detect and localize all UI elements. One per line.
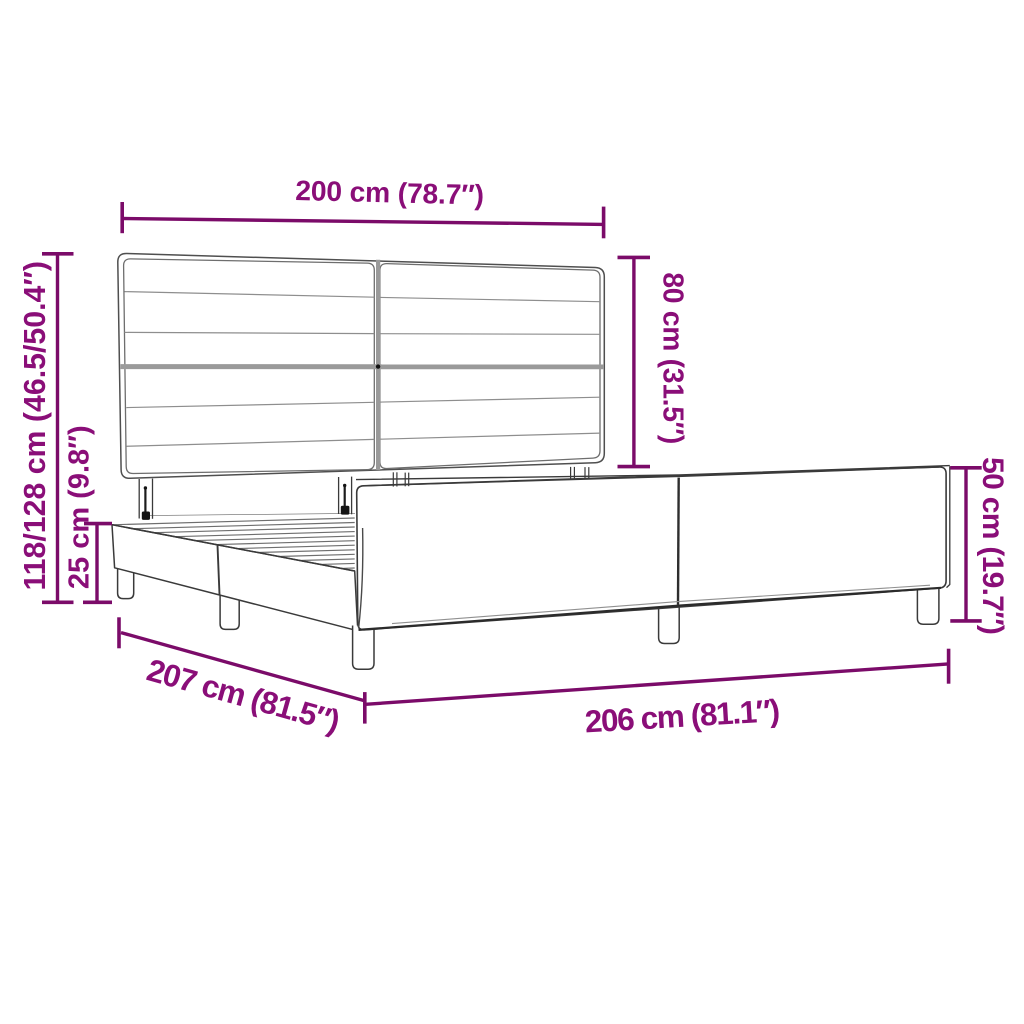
svg-text:80 cm (31.5″): 80 cm (31.5″) [658,272,690,444]
svg-text:207 cm (81.5″): 207 cm (81.5″) [143,651,343,739]
svg-text:200 cm (78.7″): 200 cm (78.7″) [295,174,484,211]
svg-text:50 cm (19.7″): 50 cm (19.7″) [976,457,1009,634]
svg-text:25 cm (9.8″): 25 cm (9.8″) [64,425,96,589]
svg-text:206 cm (81.1″): 206 cm (81.1″) [584,692,780,739]
svg-text:118/128 cm (46.5/50.4″): 118/128 cm (46.5/50.4″) [19,261,52,591]
